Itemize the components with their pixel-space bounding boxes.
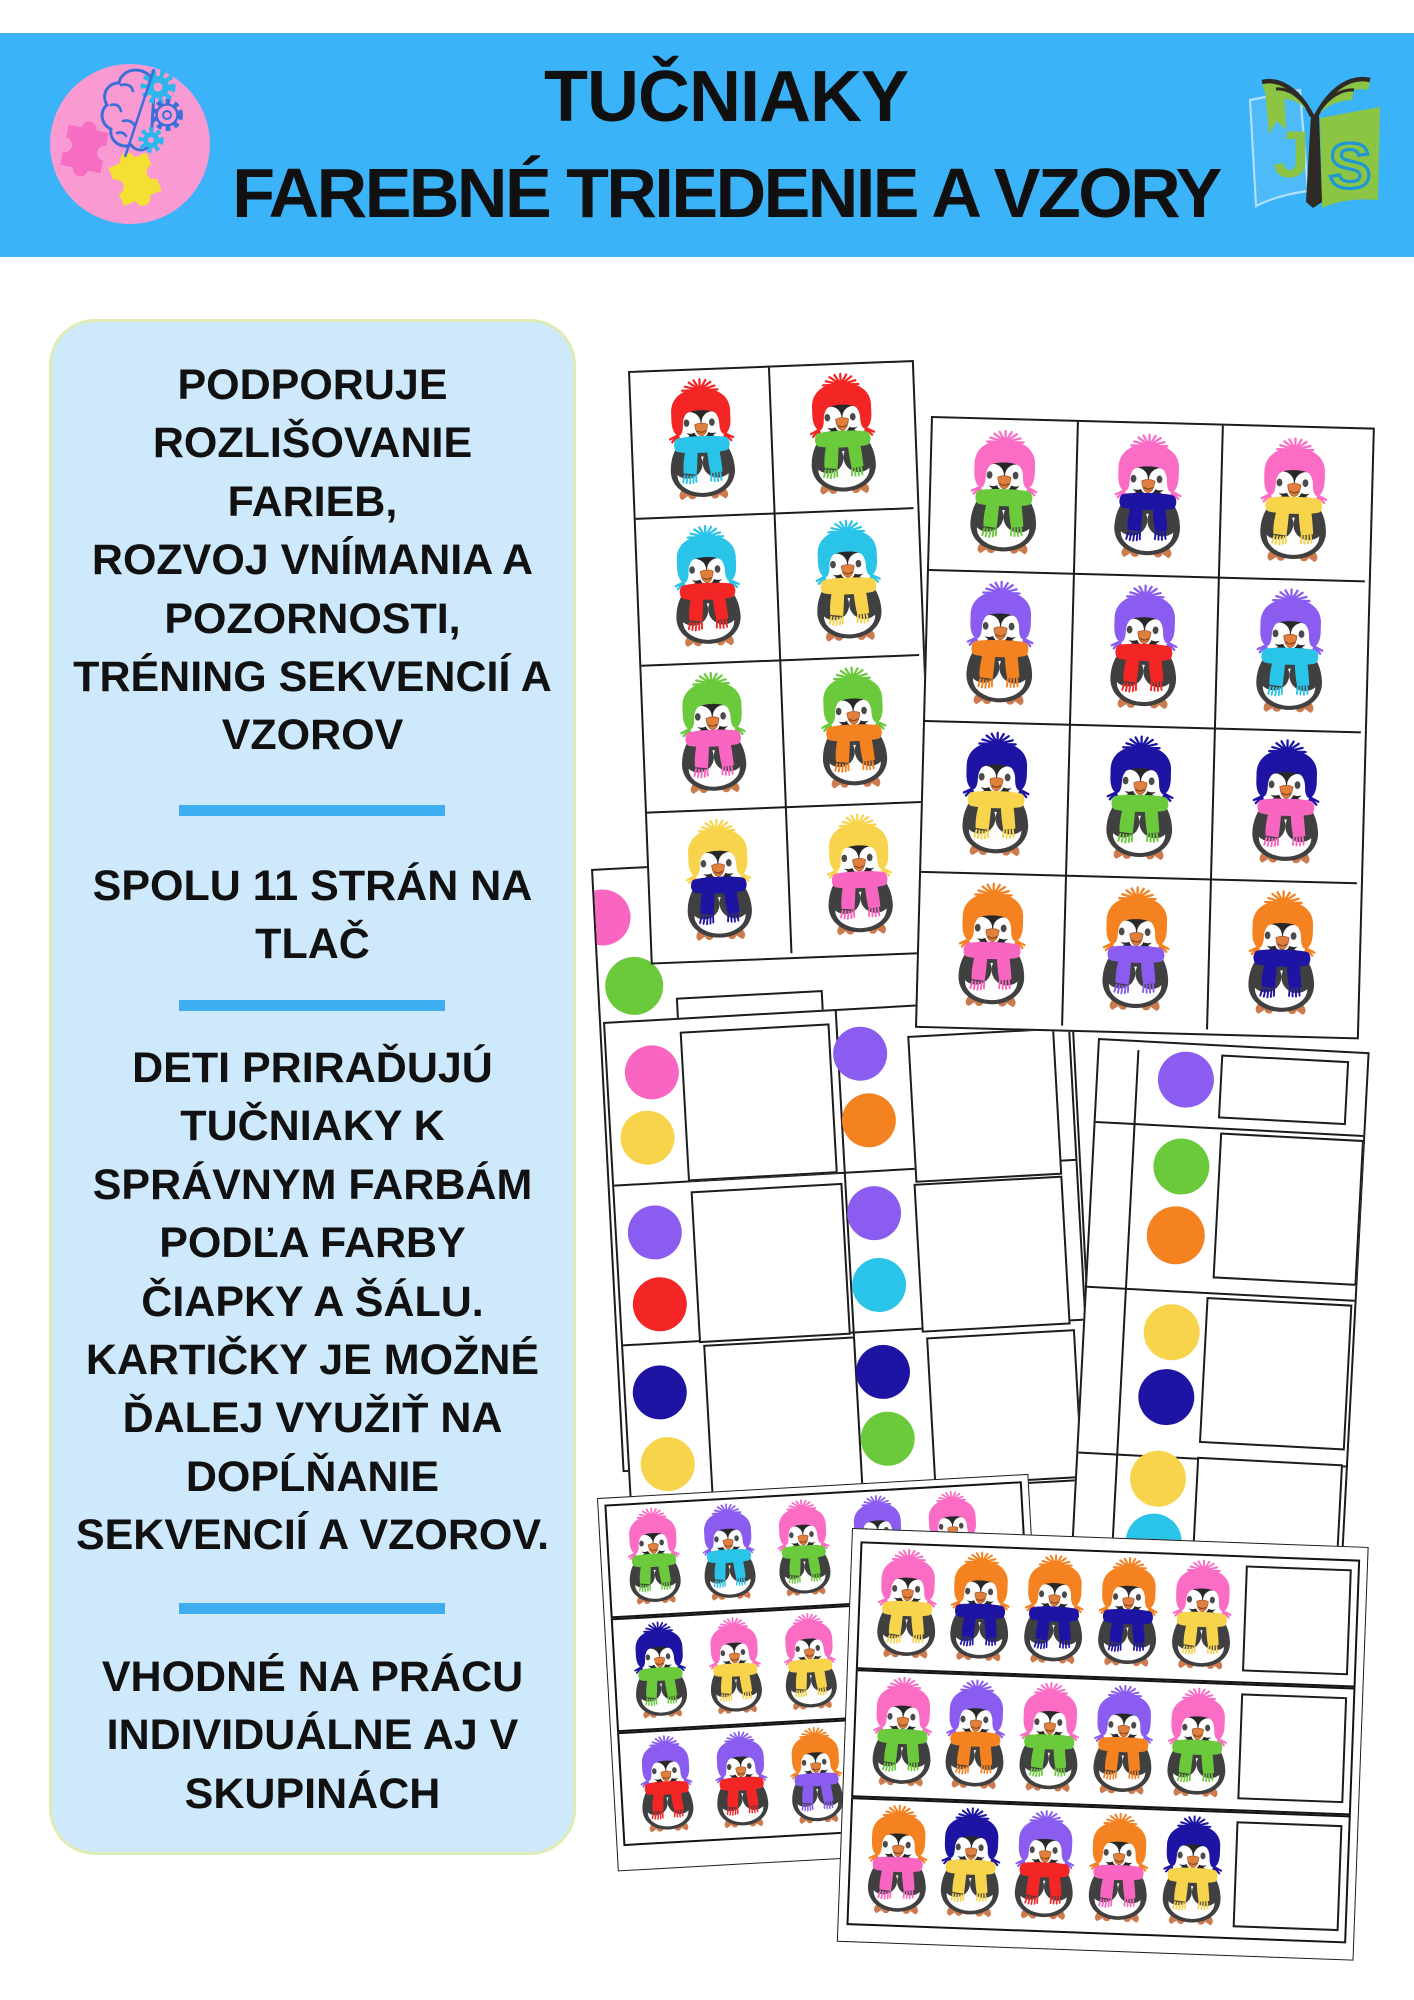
svg-text:S: S <box>1329 130 1372 202</box>
svg-text:J: J <box>1273 117 1310 191</box>
